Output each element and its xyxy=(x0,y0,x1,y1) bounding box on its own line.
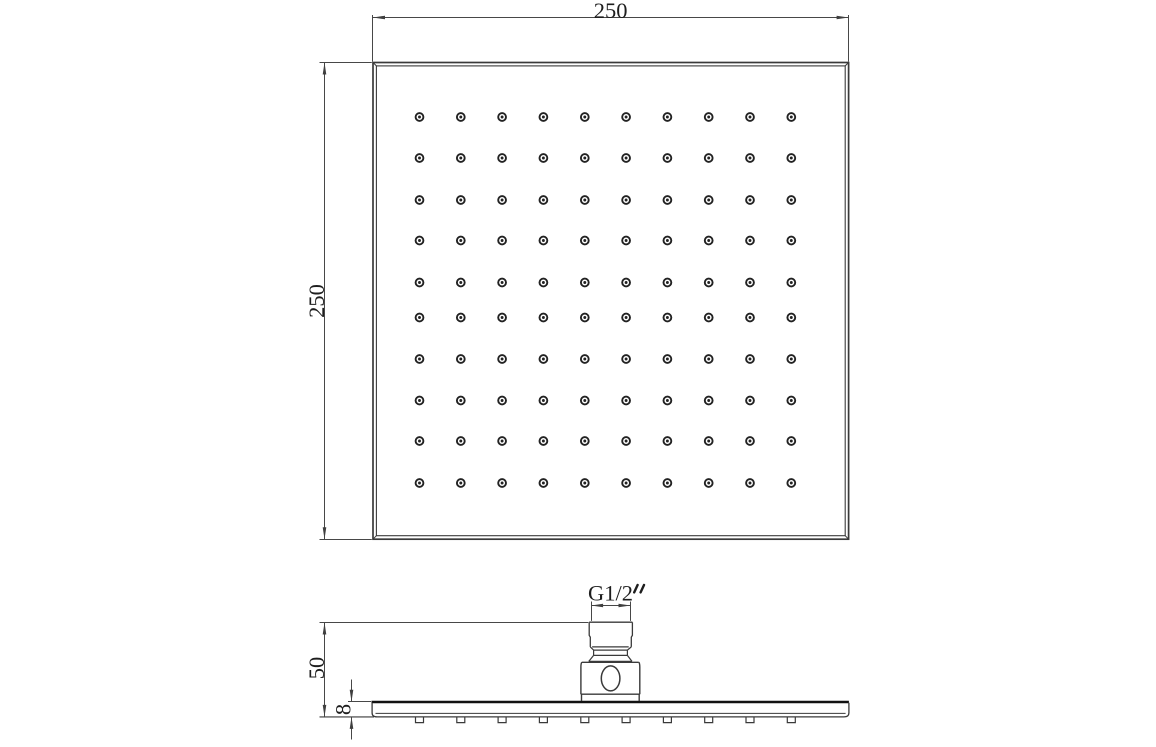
svg-text:8: 8 xyxy=(330,704,355,715)
svg-text:250: 250 xyxy=(304,284,329,318)
svg-text:250: 250 xyxy=(594,0,628,23)
svg-text:G1/2: G1/2 xyxy=(588,581,633,606)
svg-text:50: 50 xyxy=(304,657,329,680)
